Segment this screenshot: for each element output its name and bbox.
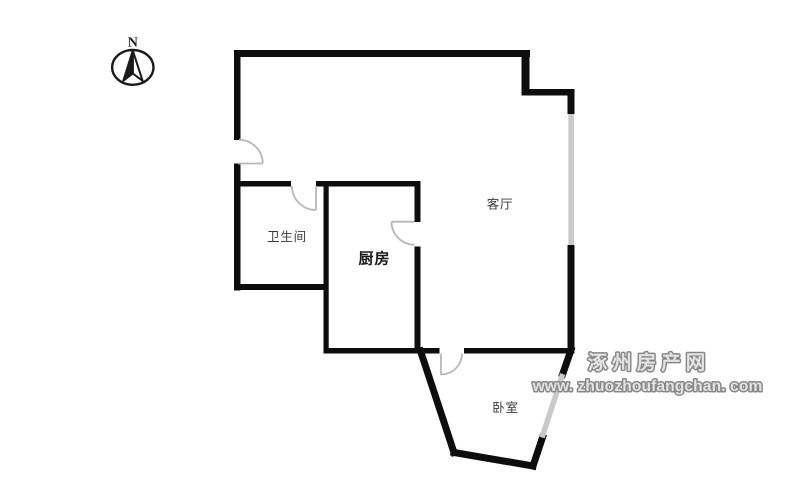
svg-text:卫生间: 卫生间 xyxy=(267,230,307,244)
svg-text:客厅: 客厅 xyxy=(487,197,514,212)
svg-text:厨房: 厨房 xyxy=(358,250,390,268)
svg-text:N: N xyxy=(128,36,138,51)
svg-text:卧室: 卧室 xyxy=(492,400,519,415)
svg-text:www. zhuozhoufangchan. com: www. zhuozhoufangchan. com xyxy=(532,378,763,395)
svg-text:涿州房产网: 涿州房产网 xyxy=(588,351,711,374)
